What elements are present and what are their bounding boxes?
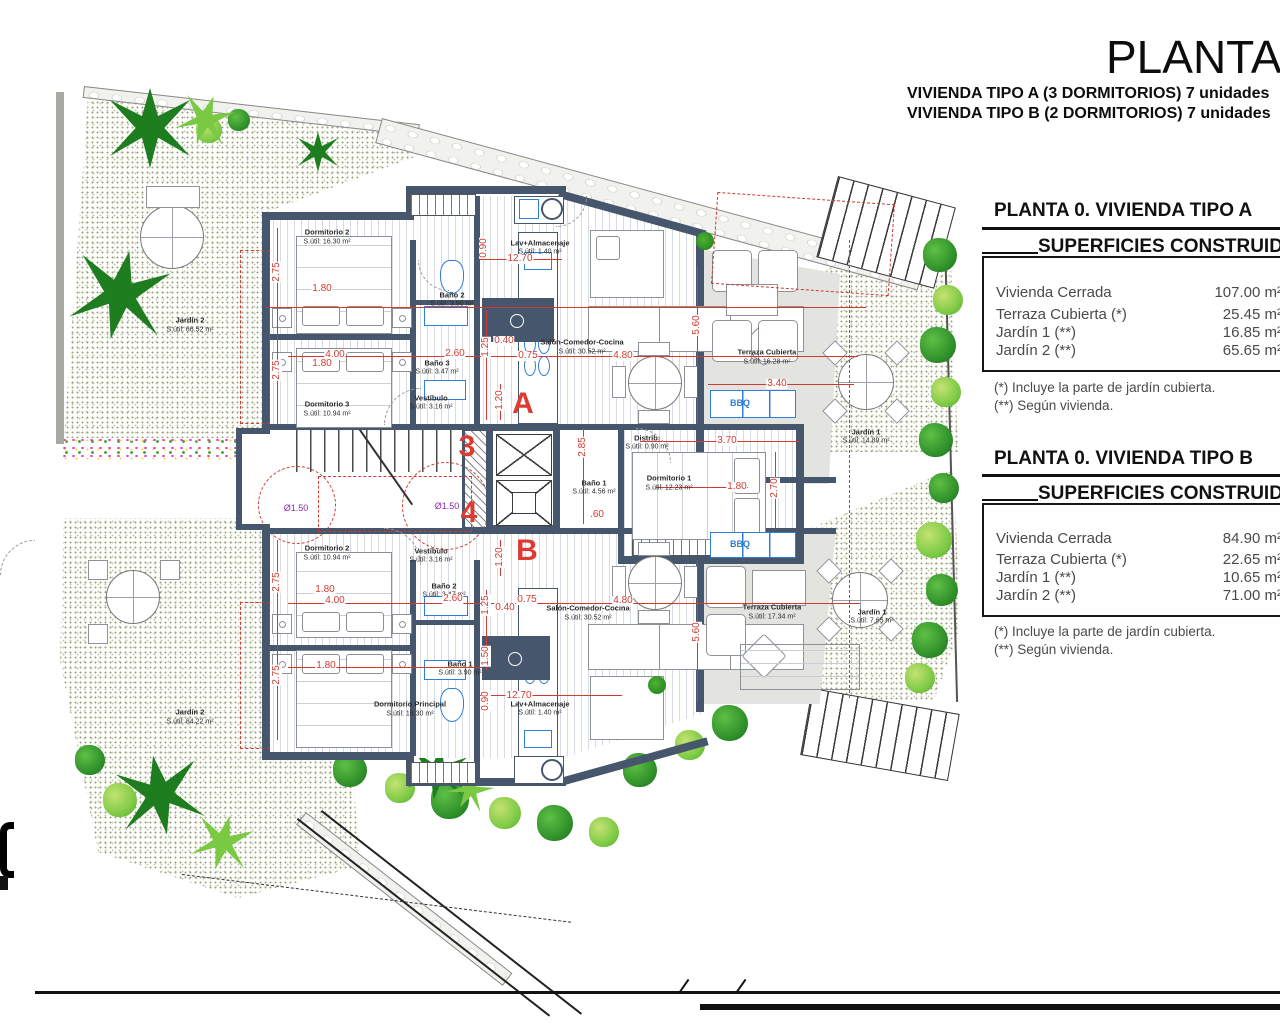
wardrobe-icon xyxy=(410,762,476,784)
table-row-label: Vivienda Cerrada xyxy=(996,530,1112,547)
table-row-value: 22.65 m² xyxy=(1140,551,1280,568)
shrub-icon xyxy=(103,783,137,817)
chair-icon xyxy=(638,342,670,356)
sheet-title: PLANTA 0 xyxy=(1106,30,1280,84)
daybed-icon xyxy=(740,644,860,690)
chair-icon xyxy=(638,610,670,624)
shrub-icon xyxy=(929,473,959,503)
shrub-icon xyxy=(923,238,957,272)
pillow-icon xyxy=(302,306,340,326)
coffee-table-icon xyxy=(726,284,778,316)
pillow-icon xyxy=(346,306,384,326)
shrub-icon xyxy=(537,805,573,841)
plant-icon xyxy=(648,676,666,694)
table-row-label: Jardín 1 (**) xyxy=(996,324,1076,341)
shrub-icon xyxy=(712,705,748,741)
dimension-line xyxy=(583,428,584,524)
chair-icon xyxy=(612,566,626,598)
panel-a-heading-rule xyxy=(982,227,1280,230)
wall-segment xyxy=(412,620,478,625)
sink-icon xyxy=(424,596,468,616)
shrub-icon xyxy=(489,797,521,829)
panel-b-table-title: SUPERFICIES CONSTRUIDAS xyxy=(1038,483,1280,505)
wall-segment xyxy=(262,752,414,760)
red-dashed-outline xyxy=(240,250,270,424)
chair-icon xyxy=(88,560,108,580)
dining-table-icon xyxy=(628,356,682,410)
bbq-counter-icon xyxy=(710,532,796,558)
shower-tray-icon xyxy=(510,314,524,328)
burner-icon xyxy=(524,356,536,376)
pillow-icon xyxy=(734,458,760,494)
dimension-line xyxy=(775,452,776,528)
sink-icon xyxy=(424,380,466,400)
table-row-label: Vivienda Cerrada xyxy=(996,284,1112,301)
nightstand-icon xyxy=(392,352,412,372)
table-row-value: 65.65 m² xyxy=(1140,342,1280,359)
panel-a-heading: PLANTA 0. VIVIENDA TIPO A xyxy=(994,200,1252,222)
garden-table-icon xyxy=(140,205,204,269)
pillow-icon xyxy=(302,654,340,674)
table-row-value: 84.90 m² xyxy=(1140,530,1280,547)
door-arc-icon xyxy=(0,540,35,575)
washer-drum-icon xyxy=(519,199,539,219)
table-row-label: Jardín 2 (**) xyxy=(996,342,1076,359)
dimension-line xyxy=(266,307,866,308)
pillow-icon xyxy=(346,352,384,372)
sink-icon xyxy=(424,660,466,680)
dimension-line xyxy=(288,603,860,604)
nightstand-icon xyxy=(272,352,292,372)
dimension-line xyxy=(277,228,278,424)
shower-tray-icon xyxy=(508,652,522,666)
chair-icon xyxy=(160,560,180,580)
garden-table-icon xyxy=(832,572,888,628)
chair-icon xyxy=(612,366,626,398)
table-row-value: 16.85 m² xyxy=(1140,324,1280,341)
nightstand-icon xyxy=(272,308,292,328)
elevator-counterweight xyxy=(512,492,536,514)
table-row-value: 71.00 m² xyxy=(1140,587,1280,604)
red-dashed-outline xyxy=(240,602,270,749)
pillow-icon xyxy=(346,654,384,674)
panel-b-leader-line xyxy=(982,499,1038,501)
sheet-subtitle-b: VIVIENDA TIPO B (2 DORMITORIOS) 7 unidad… xyxy=(907,104,1271,124)
shrub-icon xyxy=(912,622,948,658)
pillow-icon xyxy=(734,498,760,534)
dimension-line xyxy=(656,487,748,488)
dimension-line xyxy=(277,540,278,740)
table-row-value: 25.45 m² xyxy=(1140,306,1280,323)
shrub-icon xyxy=(931,377,961,407)
shrub-icon xyxy=(589,817,619,847)
sheet-subtitle-a: VIVIENDA TIPO A (3 DORMITORIOS) 7 unidad… xyxy=(907,84,1269,104)
dimension-line xyxy=(697,560,698,702)
wall-segment xyxy=(262,212,414,220)
nightstand-icon xyxy=(392,614,412,634)
wall-segment xyxy=(236,524,270,530)
chair-icon xyxy=(684,366,698,398)
burner-icon xyxy=(538,356,550,376)
titleblock-border xyxy=(700,1004,1280,1010)
shrub-icon xyxy=(228,109,250,131)
table-row-label: Jardín 1 (**) xyxy=(996,569,1076,586)
wardrobe-icon xyxy=(410,194,476,216)
shrub-icon xyxy=(75,745,105,775)
dining-table-icon xyxy=(628,556,682,610)
wall-segment xyxy=(474,196,480,424)
dimension-line xyxy=(500,540,501,576)
nightstand-icon xyxy=(272,614,292,634)
wall-segment xyxy=(266,334,414,340)
shrub-icon xyxy=(920,327,956,363)
dimension-line xyxy=(486,590,487,670)
bbq-counter-icon xyxy=(710,390,796,418)
dimension-line xyxy=(697,266,698,424)
staircase-icon xyxy=(800,688,960,781)
wall-segment xyxy=(618,424,624,564)
panel-b-note-2: (**) Según vivienda. xyxy=(994,642,1113,657)
nightstand-icon xyxy=(272,654,292,674)
chair-icon xyxy=(88,624,108,644)
table-row-label: Terraza Cubierta (*) xyxy=(996,306,1127,323)
wall-segment xyxy=(412,300,478,305)
garden-table-icon xyxy=(106,570,160,624)
dimension-line xyxy=(480,259,562,260)
table-row-label: Terraza Cubierta (*) xyxy=(996,551,1127,568)
wall-segment xyxy=(406,186,566,194)
chair-icon xyxy=(638,542,670,556)
shrub-icon xyxy=(905,663,935,693)
table-row-value: 107.00 m² xyxy=(1140,284,1280,301)
margin-glyph xyxy=(0,822,14,878)
elevator-cab-icon xyxy=(496,434,552,476)
coffee-table-icon xyxy=(752,570,806,606)
plant-icon xyxy=(696,232,714,250)
sheet-border-bottom xyxy=(35,991,1280,994)
chair-icon xyxy=(638,410,670,424)
wall-segment xyxy=(474,560,480,786)
panel-b-note-1: (*) Incluye la parte de jardín cubierta. xyxy=(994,624,1215,639)
nightstand-icon xyxy=(392,654,412,674)
red-dashed-outline xyxy=(318,476,472,532)
shrub-icon xyxy=(916,522,952,558)
dimension-line xyxy=(500,384,501,420)
dimension-line xyxy=(288,667,482,668)
table-row-value: 10.65 m² xyxy=(1140,569,1280,586)
floor-plan-sheet: { "header": { "title": "PLANTA 0", "subt… xyxy=(0,0,1280,1024)
toilet-icon xyxy=(440,688,464,722)
shrub-icon xyxy=(926,574,958,606)
margin-glyph xyxy=(0,876,8,890)
shrub-icon xyxy=(933,285,963,315)
shrub-icon xyxy=(919,423,953,457)
panel-a-table-title: SUPERFICIES CONSTRUIDAS xyxy=(1038,236,1280,258)
dimension-line xyxy=(486,310,487,420)
wall-segment xyxy=(236,428,242,530)
dimension-line xyxy=(708,384,854,385)
pillow-icon xyxy=(596,236,620,260)
armchair-icon xyxy=(706,566,746,608)
sink-icon xyxy=(524,252,552,270)
chair-icon xyxy=(684,566,698,598)
boundary-wall-left xyxy=(56,92,64,444)
panel-a-note-1: (*) Incluye la parte de jardín cubierta. xyxy=(994,380,1215,395)
panel-a-leader-line xyxy=(982,252,1038,254)
washer-drum-icon xyxy=(541,759,563,781)
garden-bench-icon xyxy=(146,186,200,208)
sink-icon xyxy=(524,730,552,748)
pillow-icon xyxy=(346,612,384,632)
red-dashed-axis xyxy=(849,240,850,698)
panel-a-note-2: (**) Según vivienda. xyxy=(994,398,1113,413)
dimension-line xyxy=(480,695,622,696)
road-curb-line xyxy=(297,818,550,1017)
wall-segment xyxy=(796,424,804,564)
red-dashed-outline xyxy=(711,192,895,296)
dimension-line xyxy=(288,356,858,357)
wall-segment xyxy=(236,428,270,434)
nightstand-icon xyxy=(392,308,412,328)
table-row-label: Jardín 2 (**) xyxy=(996,587,1076,604)
panel-b-heading-rule xyxy=(982,474,1280,477)
sink-icon xyxy=(424,306,468,326)
pillow-icon xyxy=(302,612,340,632)
garden-table-icon xyxy=(838,354,894,410)
panel-b-heading: PLANTA 0. VIVIENDA TIPO B xyxy=(994,448,1253,470)
road-curb-line xyxy=(321,810,582,1015)
pillow-icon xyxy=(302,352,340,372)
